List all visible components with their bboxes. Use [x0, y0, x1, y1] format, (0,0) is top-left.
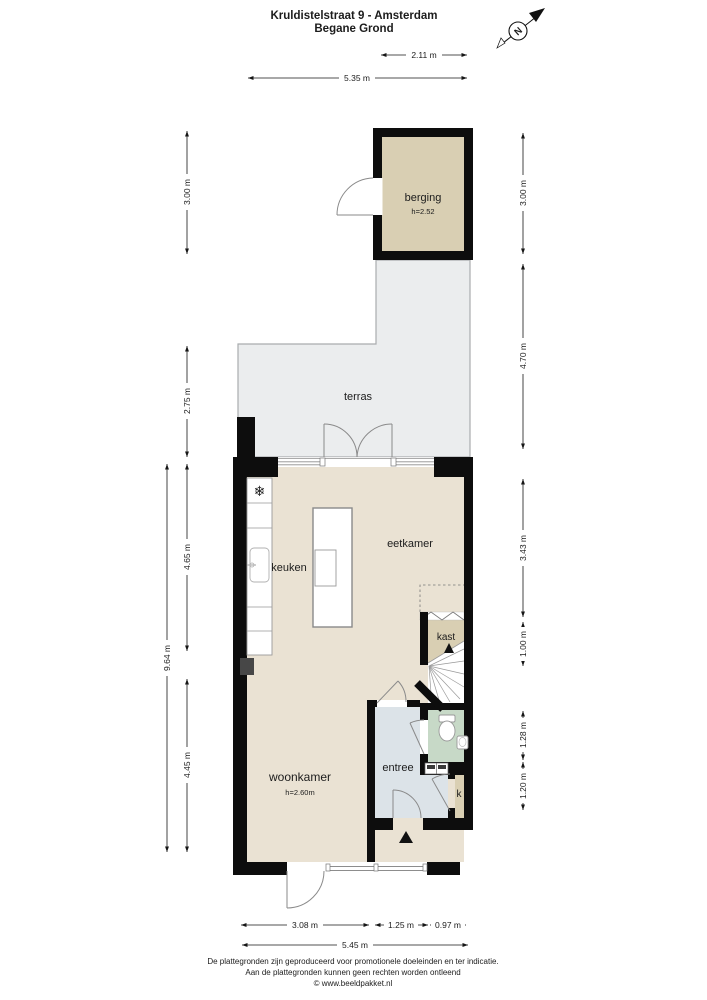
terras-label: terras — [344, 391, 373, 403]
meter-cabinet — [425, 763, 448, 774]
woonkamer-label: woonkamer — [268, 770, 331, 784]
floorplan-drawing: Kruldistelstraat 9 - Amsterdam Begane Gr… — [0, 0, 707, 1000]
wall-entree-top-right — [407, 700, 420, 707]
berging-wall-right — [464, 137, 473, 251]
svg-text:3.00 m: 3.00 m — [518, 180, 528, 206]
svg-text:1.28 m: 1.28 m — [518, 722, 528, 748]
woonkamer-height-note: h=2.60m — [285, 788, 314, 797]
compass-icon: N — [497, 8, 545, 48]
dimension-bottom-right: 0.97 m — [430, 920, 466, 930]
dimension-bottom-entree: 1.25 m — [375, 920, 428, 930]
garden-door — [287, 871, 324, 908]
berging-wall-top — [373, 128, 473, 137]
kitchen-island — [313, 508, 352, 627]
svg-text:5.35 m: 5.35 m — [344, 73, 370, 83]
berging-label: berging — [405, 192, 442, 204]
svg-text:3.08 m: 3.08 m — [292, 920, 318, 930]
page-subtitle: Begane Grond — [314, 23, 393, 35]
svg-text:4.45 m: 4.45 m — [182, 752, 192, 778]
berging-door — [337, 178, 383, 215]
wall-kast-left — [420, 612, 428, 665]
dimension-right-eetkamer: 3.43 m — [518, 479, 528, 617]
dimension-top-outer: 5.35 m — [248, 73, 467, 83]
dimension-bottom-total: 5.45 m — [242, 940, 468, 950]
entree-floor-ext — [420, 775, 448, 818]
footer-disclaimer-line1: De plattegronden zijn geproduceerd voor … — [207, 957, 498, 966]
terras-wall-post — [237, 417, 255, 457]
berging-wall-bottom — [373, 251, 473, 260]
freezer-snowflake-icon: ❄ — [254, 483, 266, 499]
wall-top-right — [434, 457, 473, 477]
wall-toilet-left-lower — [420, 754, 428, 762]
berging-height-note: h=2.52 — [411, 207, 434, 216]
wall-bottom-right — [427, 862, 460, 875]
entree-label: entree — [382, 762, 413, 774]
svg-text:1.25 m: 1.25 m — [388, 920, 414, 930]
wall-entree-front-right — [423, 818, 473, 830]
dimension-left-total: 9.64 m — [162, 464, 172, 852]
svg-text:0.97 m: 0.97 m — [435, 920, 461, 930]
svg-text:9.64 m: 9.64 m — [162, 645, 172, 671]
svg-text:2.11 m: 2.11 m — [411, 50, 436, 60]
wall-woonkamer-entree — [367, 700, 375, 862]
dimension-bottom-woonkamer: 3.08 m — [241, 920, 369, 930]
berging-wall-left-lower — [373, 215, 382, 251]
kitchen-counter: ❄ — [247, 478, 272, 655]
toilet-sink — [457, 736, 468, 749]
rear-facade-window — [278, 457, 434, 467]
dimension-left-berging: 3.00 m — [182, 131, 192, 254]
wall-right — [464, 477, 473, 830]
svg-text:5.45 m: 5.45 m — [342, 940, 368, 950]
wall-k-left-upper — [448, 775, 455, 779]
footer-disclaimer-line2: Aan de plattegronden kunnen geen rechten… — [245, 968, 460, 977]
dimension-right-toilet: 1.28 m — [518, 711, 528, 760]
front-facade-window — [287, 862, 427, 875]
terras-floor — [238, 260, 470, 457]
toilet-fixture — [439, 715, 455, 741]
dimension-top-inner: 2.11 m — [381, 50, 467, 60]
wall-entree-top-left — [367, 700, 377, 707]
keuken-label: keuken — [271, 562, 306, 574]
dimension-right-kast: 1.00 m — [518, 622, 528, 666]
kitchen-dark-unit — [240, 658, 254, 675]
wall-bottom-left — [233, 862, 287, 875]
svg-text:4.70 m: 4.70 m — [518, 343, 528, 369]
berging-wall-left-upper — [373, 137, 382, 178]
dimension-left-woonkamer: 4.45 m — [182, 679, 192, 852]
svg-text:1.20 m: 1.20 m — [518, 773, 528, 799]
dimension-right-terras: 4.70 m — [518, 264, 528, 449]
wall-toilet-top — [420, 703, 473, 710]
svg-text:1.00 m: 1.00 m — [518, 631, 528, 657]
page-title: Kruldistelstraat 9 - Amsterdam — [270, 10, 437, 22]
dimension-left-keuken: 4.65 m — [182, 464, 192, 651]
svg-text:3.43 m: 3.43 m — [518, 535, 528, 561]
svg-text:2.75 m: 2.75 m — [182, 388, 192, 414]
svg-text:3.00 m: 3.00 m — [182, 179, 192, 205]
footer-credit: © www.beeldpakket.nl — [314, 979, 393, 988]
kast-label: kast — [437, 632, 456, 643]
wall-top-left — [233, 457, 278, 477]
floorplan-page: Kruldistelstraat 9 - Amsterdam Begane Gr… — [0, 0, 707, 1000]
dimension-right-berging: 3.00 m — [518, 133, 528, 254]
dimension-left-terras: 2.75 m — [182, 346, 192, 457]
dimension-right-entree: 1.20 m — [518, 762, 528, 810]
wall-toilet-left-upper — [420, 710, 428, 720]
svg-text:4.65 m: 4.65 m — [182, 544, 192, 570]
eetkamer-label: eetkamer — [387, 538, 433, 550]
kitchen-sink — [247, 548, 269, 582]
